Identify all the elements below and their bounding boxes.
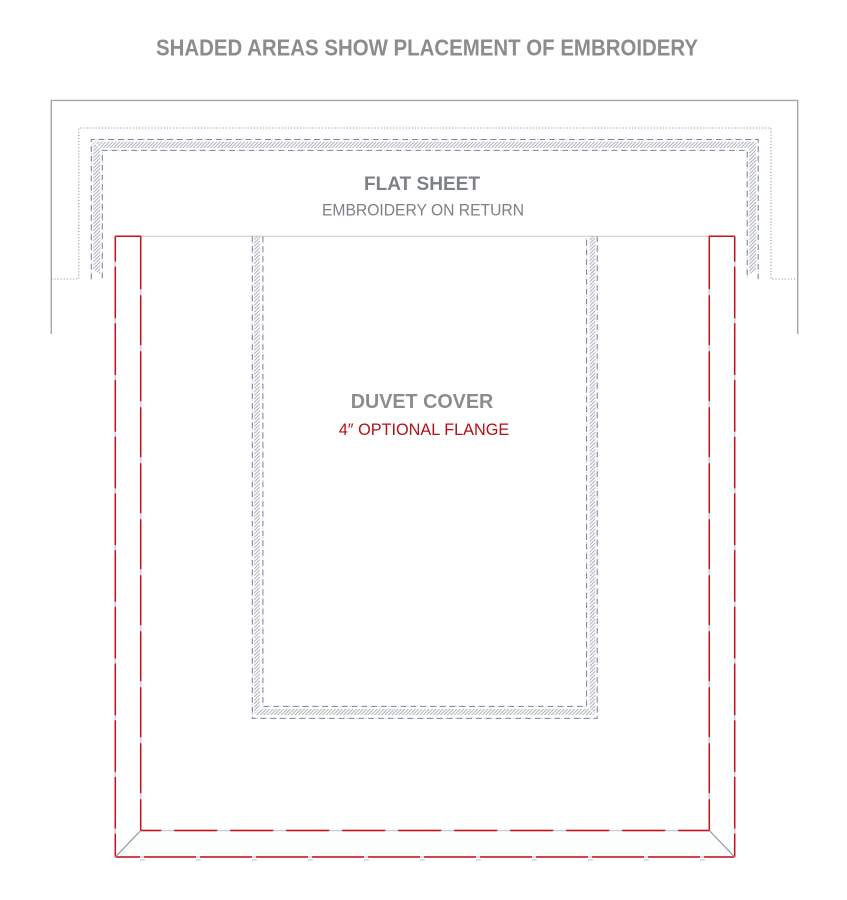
svg-text:EMBROIDERY ON RETURN: EMBROIDERY ON RETURN <box>322 202 524 220</box>
svg-text:FLAT SHEET: FLAT SHEET <box>364 173 480 195</box>
svg-text:SHADED AREAS SHOW PLACEMENT OF: SHADED AREAS SHOW PLACEMENT OF EMBROIDER… <box>156 35 698 61</box>
svg-text:DUVET COVER: DUVET COVER <box>351 390 494 413</box>
svg-text:4″ OPTIONAL FLANGE: 4″ OPTIONAL FLANGE <box>339 421 510 439</box>
